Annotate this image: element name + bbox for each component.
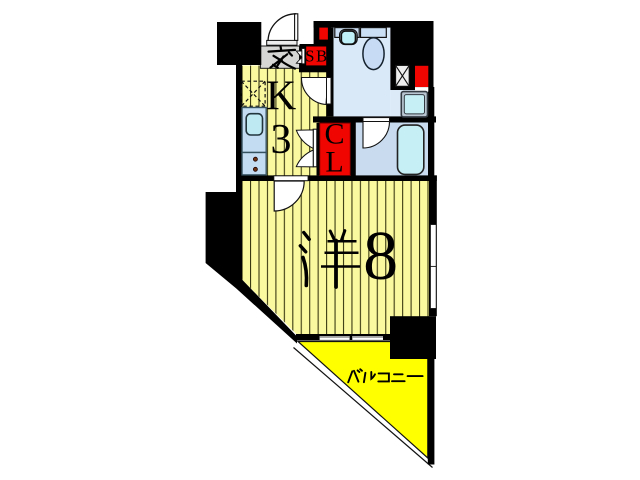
svg-text:3: 3: [271, 117, 292, 163]
svg-text:8: 8: [363, 218, 398, 295]
svg-text:S: S: [305, 47, 314, 66]
svg-text:L: L: [325, 146, 343, 179]
svg-text:K: K: [266, 74, 296, 120]
svg-text:B: B: [316, 47, 327, 66]
